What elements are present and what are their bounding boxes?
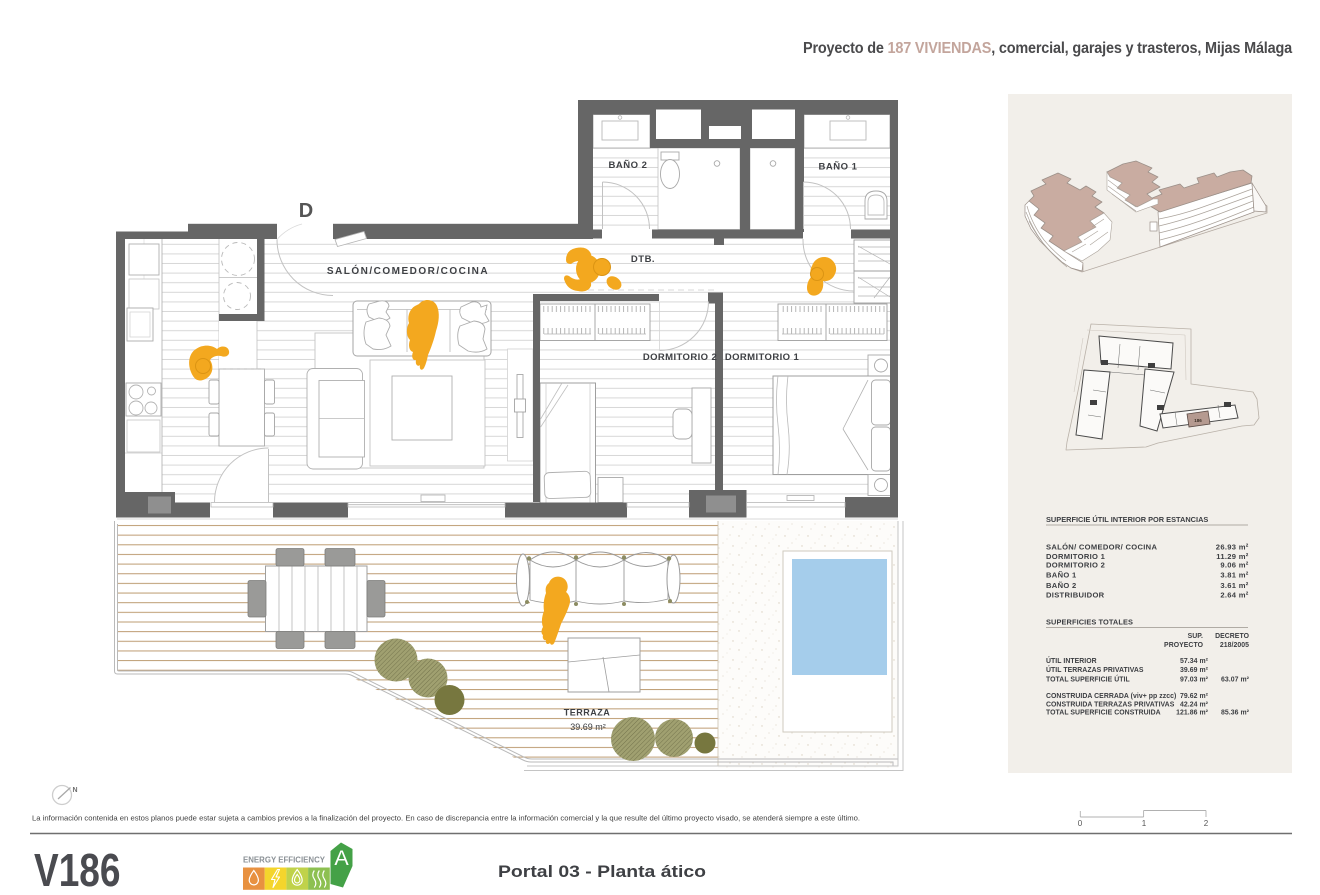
svg-text:N: N — [73, 787, 78, 794]
svg-text:57.34 m²: 57.34 m² — [1180, 658, 1209, 665]
svg-text:SUP.: SUP. — [1188, 633, 1203, 640]
svg-text:186: 186 — [1194, 418, 1202, 423]
svg-text:11.29 m²: 11.29 m² — [1216, 552, 1249, 561]
svg-text:SUPERFICIES TOTALES: SUPERFICIES TOTALES — [1046, 618, 1133, 627]
svg-text:A: A — [334, 846, 349, 870]
svg-text:CONSTRUIDA TERRAZAS PRIVATIVAS: CONSTRUIDA TERRAZAS PRIVATIVAS — [1046, 701, 1175, 708]
svg-text:2.64 m²: 2.64 m² — [1220, 591, 1248, 600]
svg-text:39.69 m²: 39.69 m² — [570, 722, 606, 732]
svg-text:3.81 m²: 3.81 m² — [1220, 571, 1248, 580]
svg-text:PROYECTO: PROYECTO — [1164, 642, 1204, 649]
svg-text:ÚTIL TERRAZAS PRIVATIVAS: ÚTIL TERRAZAS PRIVATIVAS — [1046, 665, 1144, 674]
svg-text:TOTAL SUPERFICIE CONSTRUIDA: TOTAL SUPERFICIE CONSTRUIDA — [1046, 710, 1161, 717]
svg-text:9.06 m²: 9.06 m² — [1220, 561, 1248, 570]
svg-text:97.03 m²: 97.03 m² — [1180, 676, 1209, 683]
svg-text:0: 0 — [1078, 819, 1083, 828]
svg-text:DORMITORIO 1: DORMITORIO 1 — [1046, 552, 1106, 561]
svg-text:DORMITORIO 2: DORMITORIO 2 — [1046, 561, 1105, 570]
svg-text:DECRETO: DECRETO — [1215, 633, 1250, 640]
svg-text:D: D — [299, 200, 313, 222]
svg-text:La información contenida en es: La información contenida en estos planos… — [32, 815, 860, 823]
svg-text:TOTAL SUPERFICIE ÚTIL: TOTAL SUPERFICIE ÚTIL — [1046, 674, 1130, 683]
svg-text:Proyecto de 187 VIVIENDAS, com: Proyecto de 187 VIVIENDAS, comercial, ga… — [803, 40, 1293, 57]
svg-text:SALÓN/ COMEDOR/ COCINA: SALÓN/ COMEDOR/ COCINA — [1046, 543, 1157, 552]
svg-text:DTB.: DTB. — [631, 254, 655, 265]
svg-text:V186: V186 — [34, 844, 121, 895]
svg-text:1: 1 — [1142, 819, 1147, 828]
svg-text:79.62 m²: 79.62 m² — [1180, 693, 1209, 700]
svg-text:DORMITORIO 2: DORMITORIO 2 — [643, 352, 717, 363]
svg-text:39.69 m²: 39.69 m² — [1180, 667, 1209, 674]
svg-text:63.07 m²: 63.07 m² — [1221, 676, 1250, 683]
svg-text:BAÑO 2: BAÑO 2 — [609, 160, 648, 171]
svg-text:CONSTRUIDA CERRADA (viv+ pp zz: CONSTRUIDA CERRADA (viv+ pp zzcc) — [1046, 693, 1176, 700]
svg-text:BAÑO 1: BAÑO 1 — [1046, 571, 1077, 580]
svg-text:3.61 m²: 3.61 m² — [1220, 581, 1248, 590]
svg-text:121.86 m²: 121.86 m² — [1176, 710, 1209, 717]
svg-text:SALÓN/COMEDOR/COCINA: SALÓN/COMEDOR/COCINA — [327, 264, 489, 277]
svg-text:BAÑO 2: BAÑO 2 — [1046, 581, 1077, 590]
svg-text:218/2005: 218/2005 — [1220, 642, 1249, 649]
svg-text:Portal 03 - Planta ático: Portal 03 - Planta ático — [498, 863, 706, 881]
svg-text:DISTRIBUIDOR: DISTRIBUIDOR — [1046, 591, 1105, 600]
svg-text:DORMITORIO 1: DORMITORIO 1 — [725, 352, 800, 363]
svg-text:BAÑO 1: BAÑO 1 — [819, 162, 858, 173]
svg-text:ENERGY EFFICIENCY: ENERGY EFFICIENCY — [243, 855, 325, 865]
svg-text:TERRAZA: TERRAZA — [564, 708, 611, 718]
svg-text:42.24 m²: 42.24 m² — [1180, 701, 1209, 708]
svg-text:SUPERFICIE ÚTIL INTERIOR POR E: SUPERFICIE ÚTIL INTERIOR POR ESTANCIAS — [1046, 515, 1208, 524]
svg-text:26.93 m²: 26.93 m² — [1216, 543, 1249, 552]
svg-text:2: 2 — [1204, 819, 1209, 828]
svg-text:ÚTIL INTERIOR: ÚTIL INTERIOR — [1046, 656, 1097, 665]
svg-text:85.36 m²: 85.36 m² — [1221, 710, 1250, 717]
